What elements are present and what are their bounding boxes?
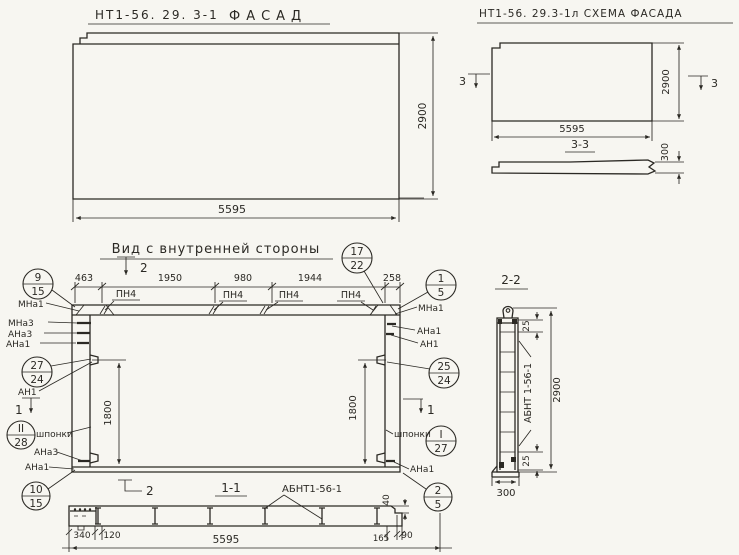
part-label-abnt-2-2: АБНТ 1-56-1 <box>523 363 534 423</box>
callout-17-22: 17 22 <box>342 243 372 273</box>
dim-2900: 2900 <box>552 377 563 402</box>
schema-dim-width: 5595 <box>559 124 584 135</box>
facade-view: НТ1-56. 29. 3-1 ФАСАД 2900 5595 <box>73 8 438 222</box>
plate-label-2: ПН4 <box>223 290 243 301</box>
callout-2-5-top: 2 <box>435 485 442 497</box>
section-1-1: 1-1 АБНТ1-56-1 40 340 120 165 90 5595 <box>62 481 452 552</box>
connector-symbols <box>95 508 380 524</box>
callout-9-15-top: 9 <box>35 272 42 284</box>
schema-thickness-extensions <box>655 162 684 173</box>
inner-marker1-left: 1 <box>15 403 23 417</box>
section-1-1-title: 1-1 <box>221 481 241 495</box>
dim-165: 165 <box>373 534 389 544</box>
label-shponki-left: шпонки <box>36 430 73 440</box>
label-an1-right: АН1 <box>420 340 439 350</box>
label-ana1-right-low: АНа1 <box>410 465 434 475</box>
facade-panel-outline <box>73 33 399 199</box>
callout-1-5: 1 5 <box>426 270 456 300</box>
label-ana1-right: АНа1 <box>417 327 441 337</box>
callout-10-15-top: 10 <box>29 484 42 496</box>
inner-view-title: Вид с внутренней стороны <box>112 242 321 257</box>
ladder-rungs <box>500 332 515 452</box>
bottom-dim-ticks <box>66 513 440 552</box>
schema-dim-height: 2900 <box>661 69 672 94</box>
inner-dim-1950: 1950 <box>158 273 182 284</box>
callout-9-15: 9 15 <box>23 269 53 299</box>
callout-10-15-bottom: 15 <box>29 498 42 510</box>
callout-27-24-bottom: 24 <box>30 374 44 386</box>
label-shponki-right: шпонки <box>394 430 431 440</box>
inner-dim-463: 463 <box>75 273 93 284</box>
label-mna3-left: МНа3 <box>8 319 34 329</box>
callout-17-22-top: 17 <box>350 246 363 258</box>
inner-view: Вид с внутренней стороны 463 1950 980 19… <box>6 242 459 511</box>
callout-1-5-bottom: 5 <box>438 287 445 299</box>
dim-25-top: 25 <box>522 320 532 331</box>
callout-1-5-top: 1 <box>438 273 445 285</box>
callout-25-24-top: 25 <box>437 361 450 373</box>
inner-dim-1800-right: 1800 <box>348 395 359 420</box>
facade-extension-lines <box>73 33 438 222</box>
facade-title-name: ФАСАД <box>229 9 307 24</box>
schema-section-marker-bars <box>468 74 708 76</box>
inner-marker2-top: 2 <box>140 261 148 275</box>
schema-extension-lines <box>492 43 684 141</box>
technical-drawing-sheet: НТ1-56. 29. 3-1 ФАСАД 2900 5595 НТ1-56. … <box>0 0 739 555</box>
callout-II-28-bottom: 28 <box>14 437 27 449</box>
facade-dim-width: 5595 <box>218 203 246 216</box>
inner-marker2-bottom-bar <box>118 480 142 491</box>
schema-marker-right: 3 <box>711 77 718 90</box>
dim-120: 120 <box>103 531 120 541</box>
dim-300-extensions <box>492 477 519 486</box>
inner-dim-1944: 1944 <box>298 273 322 284</box>
dim-2900-extensions <box>513 308 557 472</box>
callout-2-5: 2 5 <box>424 483 452 511</box>
plate-label-1: ПН4 <box>116 289 136 300</box>
inner-key-protrusions <box>90 355 385 463</box>
schema-view: НТ1-56. 29.3-1л СХЕМА ФАСАДА 3 3 2900 55… <box>459 8 733 184</box>
label-ana1-left-low: АНа1 <box>25 463 49 473</box>
rebar-dot <box>74 508 76 510</box>
dim-90: 90 <box>401 531 413 541</box>
inner-marker2-bottom: 2 <box>146 484 154 498</box>
dim-40: 40 <box>382 494 392 506</box>
rebar-dot <box>84 508 86 510</box>
callout-2-5-bottom: 5 <box>435 499 442 511</box>
inner-embedded-anchors <box>77 323 396 461</box>
callout-I-27-bottom: 27 <box>434 443 447 455</box>
inner-dim-980: 980 <box>234 273 252 284</box>
callout-II-28-top: II <box>18 423 24 435</box>
schema-section-title: 3-3 <box>571 138 589 151</box>
section-2-2-strip <box>497 318 518 472</box>
facade-dim-height: 2900 <box>417 103 429 130</box>
section-1-1-strip <box>69 506 402 526</box>
part-label-abnt: АБНТ1-56-1 <box>282 484 342 495</box>
schema-title: НТ1-56. 29.3-1л СХЕМА ФАСАДА <box>479 8 683 20</box>
section-2-2-title: 2-2 <box>501 273 521 287</box>
callout-9-15-bottom: 15 <box>31 286 44 298</box>
inner-marker1-bars <box>22 398 423 399</box>
dim-5595: 5595 <box>213 534 240 546</box>
callout-27-24-top: 27 <box>30 360 43 372</box>
callout-25-24: 25 24 <box>429 358 459 388</box>
section-2-2: 2-2 25 25 АБНТ 1-56-1 2900 300 <box>492 273 563 499</box>
inner-dim-258: 258 <box>383 273 401 284</box>
label-ana3-left: АНа3 <box>8 330 32 340</box>
callout-10-15: 10 15 <box>22 482 50 510</box>
label-ana3-left-low: АНа3 <box>34 448 58 458</box>
inner-top-band-hatches <box>76 305 397 315</box>
lifting-loop-eye <box>506 309 510 313</box>
section-cut-marks <box>498 319 517 468</box>
plate-label-4: ПН4 <box>341 290 361 301</box>
dim-40-extensions <box>391 506 409 513</box>
inner-dim-1800-left: 1800 <box>103 400 114 425</box>
inner-panel-outline <box>72 305 400 472</box>
dim-25-bottom: 25 <box>522 455 532 466</box>
label-mna1-left: МНа1 <box>18 300 44 310</box>
dim-300: 300 <box>496 488 515 499</box>
left-block-details <box>74 516 86 530</box>
callout-17-22-bottom: 22 <box>350 260 363 272</box>
callout-25-24-bottom: 24 <box>437 375 451 387</box>
dim-340: 340 <box>73 531 90 541</box>
label-an1-left: АН1 <box>18 388 37 398</box>
part-label-leaders <box>264 495 322 519</box>
schema-marker-left: 3 <box>459 75 466 88</box>
schema-section-strip <box>492 160 655 174</box>
schema-dim-thickness: 300 <box>660 143 671 161</box>
plate-label-3: ПН4 <box>279 290 299 301</box>
label-ana1-left: АНа1 <box>6 340 30 350</box>
inner-marker1-right: 1 <box>427 403 435 417</box>
callout-I-27-top: I <box>439 429 442 441</box>
drawing-canvas: НТ1-56. 29. 3-1 ФАСАД 2900 5595 НТ1-56. … <box>0 0 739 555</box>
facade-title-code: НТ1-56. 29. 3-1 <box>95 8 219 22</box>
callout-27-24: 27 24 <box>22 357 52 387</box>
label-mna1-right: МНа1 <box>418 304 444 314</box>
schema-panel-outline <box>492 43 652 121</box>
rebar-dot <box>89 508 91 510</box>
rebar-dot <box>79 508 81 510</box>
callout-II-28: II 28 <box>7 421 35 449</box>
